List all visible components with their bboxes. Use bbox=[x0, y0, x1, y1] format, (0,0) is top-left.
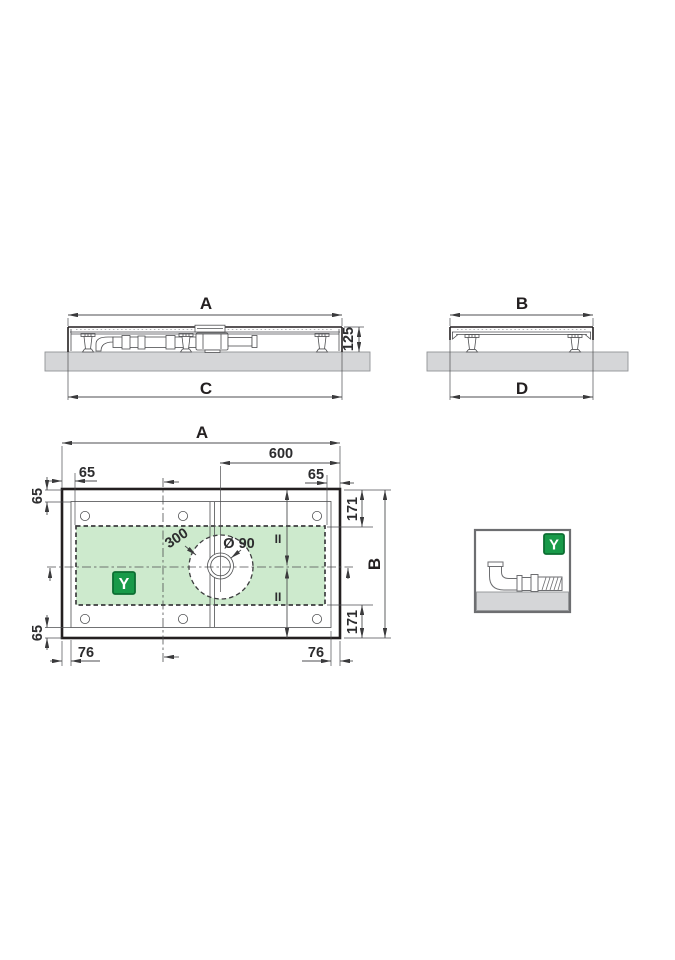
dim-label-b: B bbox=[516, 294, 528, 313]
dim-label-65: 65 bbox=[79, 465, 95, 481]
equal-mark-bottom: II bbox=[275, 590, 282, 604]
legend-box: Y bbox=[475, 530, 570, 612]
dim-plan-a: A bbox=[62, 423, 340, 488]
dim-label-plan-a: A bbox=[196, 423, 208, 442]
dim-label-600: 600 bbox=[269, 446, 293, 462]
dim-label-76: 76 bbox=[308, 645, 324, 661]
dim-label-a: A bbox=[200, 294, 212, 313]
dim-label-65: 65 bbox=[308, 467, 324, 483]
dim-65-left-bottom: 65 bbox=[30, 615, 71, 650]
zone-badge-label: Y bbox=[119, 576, 130, 593]
floor-slab bbox=[45, 352, 370, 371]
dim-171-top: 171 bbox=[327, 490, 391, 527]
dim-600: 600 bbox=[220, 446, 340, 463]
drain-trap bbox=[196, 333, 228, 350]
dim-label-125: 125 bbox=[341, 327, 357, 351]
dim-label-171: 171 bbox=[345, 497, 361, 521]
floor-slab bbox=[427, 352, 628, 371]
dim-label-65: 65 bbox=[30, 625, 46, 641]
dim-side-b: B bbox=[450, 294, 593, 326]
side-view-long: A 125 C bbox=[45, 294, 370, 400]
side-view-short: B D bbox=[427, 294, 628, 400]
dim-label-171: 171 bbox=[345, 610, 361, 634]
legend-floor bbox=[477, 592, 569, 611]
dim-76-left: 76 bbox=[50, 640, 100, 666]
dim-label-76: 76 bbox=[78, 645, 94, 661]
dim-plan-b: B bbox=[365, 490, 385, 638]
dim-label-o90: Ø 90 bbox=[223, 536, 254, 552]
legend-badge: Y bbox=[544, 534, 564, 554]
zone-badge: Y bbox=[113, 572, 135, 594]
equal-mark-top: II bbox=[275, 532, 282, 546]
dim-label-d: D bbox=[516, 379, 528, 398]
dim-65-left-top: 65 bbox=[30, 477, 71, 515]
drain-piping bbox=[96, 333, 257, 353]
dim-label-plan-b: B bbox=[365, 558, 384, 570]
dim-label-c: C bbox=[200, 379, 212, 398]
tray-feet bbox=[465, 335, 582, 353]
shower-tray-drawing: A 125 C bbox=[0, 0, 675, 960]
dim-side-125: 125 bbox=[341, 327, 364, 352]
dim-171-bottom: 171 bbox=[327, 605, 391, 638]
plan-view: Y 300 Ø 90 II II A 600 bbox=[30, 423, 391, 666]
dim-label-65: 65 bbox=[30, 488, 46, 504]
technical-drawing-page: A 125 C bbox=[0, 0, 675, 960]
legend-badge-label: Y bbox=[549, 537, 559, 554]
dim-76-right: 76 bbox=[302, 631, 353, 666]
dim-side-a: A bbox=[68, 294, 342, 326]
